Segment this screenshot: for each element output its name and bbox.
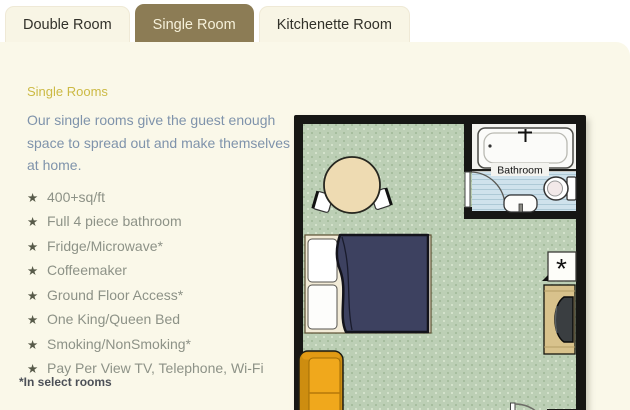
feature-label: Ground Floor Access* xyxy=(47,287,183,303)
star-icon: ★ xyxy=(27,239,47,254)
bathtub xyxy=(478,128,573,168)
feature-label: Full 4 piece bathroom xyxy=(47,213,182,229)
star-icon: ★ xyxy=(27,288,47,303)
tab-kitchenette-room[interactable]: Kitchenette Room xyxy=(259,6,410,42)
feature-item: ★400+sq/ft xyxy=(27,189,291,214)
tub-drain xyxy=(488,144,491,147)
floorplan-image: Bathroom xyxy=(294,115,586,410)
toilet xyxy=(544,177,576,200)
feature-label: One King/Queen Bed xyxy=(47,311,180,327)
feature-item: ★Full 4 piece bathroom xyxy=(27,213,291,238)
star-icon: ★ xyxy=(27,214,47,229)
sink xyxy=(504,195,537,212)
pillow xyxy=(308,285,337,329)
feature-label: 400+sq/ft xyxy=(47,189,105,205)
sofa xyxy=(299,351,343,410)
room-type-tabs: Double Room Single Room Kitchenette Room xyxy=(0,0,630,42)
star-icon: ★ xyxy=(27,361,47,376)
page-title: Single Rooms xyxy=(27,84,291,99)
star-icon: ★ xyxy=(27,263,47,278)
floorplan-svg: Bathroom xyxy=(294,115,586,410)
room-details-column: Single Rooms Our single rooms give the g… xyxy=(27,84,291,385)
feature-item: ★Coffeemaker xyxy=(27,262,291,287)
feature-label: Coffeemaker xyxy=(47,262,127,278)
tab-double-room[interactable]: Double Room xyxy=(5,6,130,42)
feature-label: Smoking/NonSmoking* xyxy=(47,336,191,352)
feature-label: Pay Per View TV, Telephone, Wi-Fi xyxy=(47,360,264,376)
tv-stand xyxy=(544,285,575,354)
pillow xyxy=(308,239,337,282)
feature-item: ★Fridge/Microwave* xyxy=(27,238,291,263)
room-info-page: Double Room Single Room Kitchenette Room… xyxy=(0,0,630,410)
closet-symbol: * xyxy=(556,253,567,284)
feature-label: Fridge/Microwave* xyxy=(47,238,163,254)
feature-item: ★Smoking/NonSmoking* xyxy=(27,336,291,361)
round-table xyxy=(324,157,380,213)
footnote: *In select rooms xyxy=(19,375,112,389)
bathroom: Bathroom xyxy=(464,124,576,219)
star-icon: ★ xyxy=(27,337,47,352)
feature-item: ★Ground Floor Access* xyxy=(27,287,291,312)
single-room-panel: Single Rooms Our single rooms give the g… xyxy=(0,42,630,410)
tab-single-room[interactable]: Single Room xyxy=(135,4,254,42)
room-description: Our single rooms give the guest enough s… xyxy=(27,109,291,177)
feature-list: ★400+sq/ft ★Full 4 piece bathroom ★Fridg… xyxy=(27,189,291,385)
star-icon: ★ xyxy=(27,312,47,327)
tv xyxy=(555,297,573,342)
bed xyxy=(305,235,431,333)
bathroom-label: Bathroom xyxy=(497,165,543,177)
star-icon: ★ xyxy=(27,190,47,205)
feature-item: ★One King/Queen Bed xyxy=(27,311,291,336)
